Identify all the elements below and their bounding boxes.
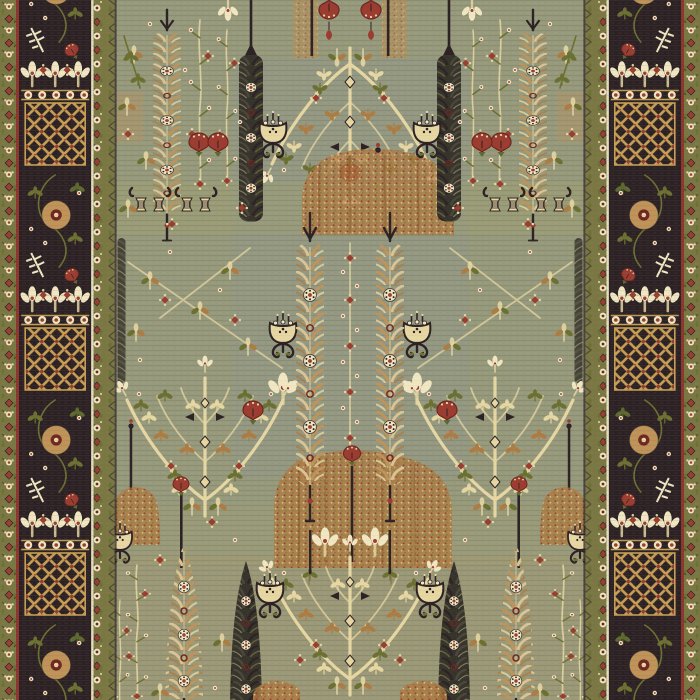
- photo-grain: [0, 0, 700, 700]
- rug-svg: [0, 0, 700, 700]
- rug-photo: [0, 0, 700, 700]
